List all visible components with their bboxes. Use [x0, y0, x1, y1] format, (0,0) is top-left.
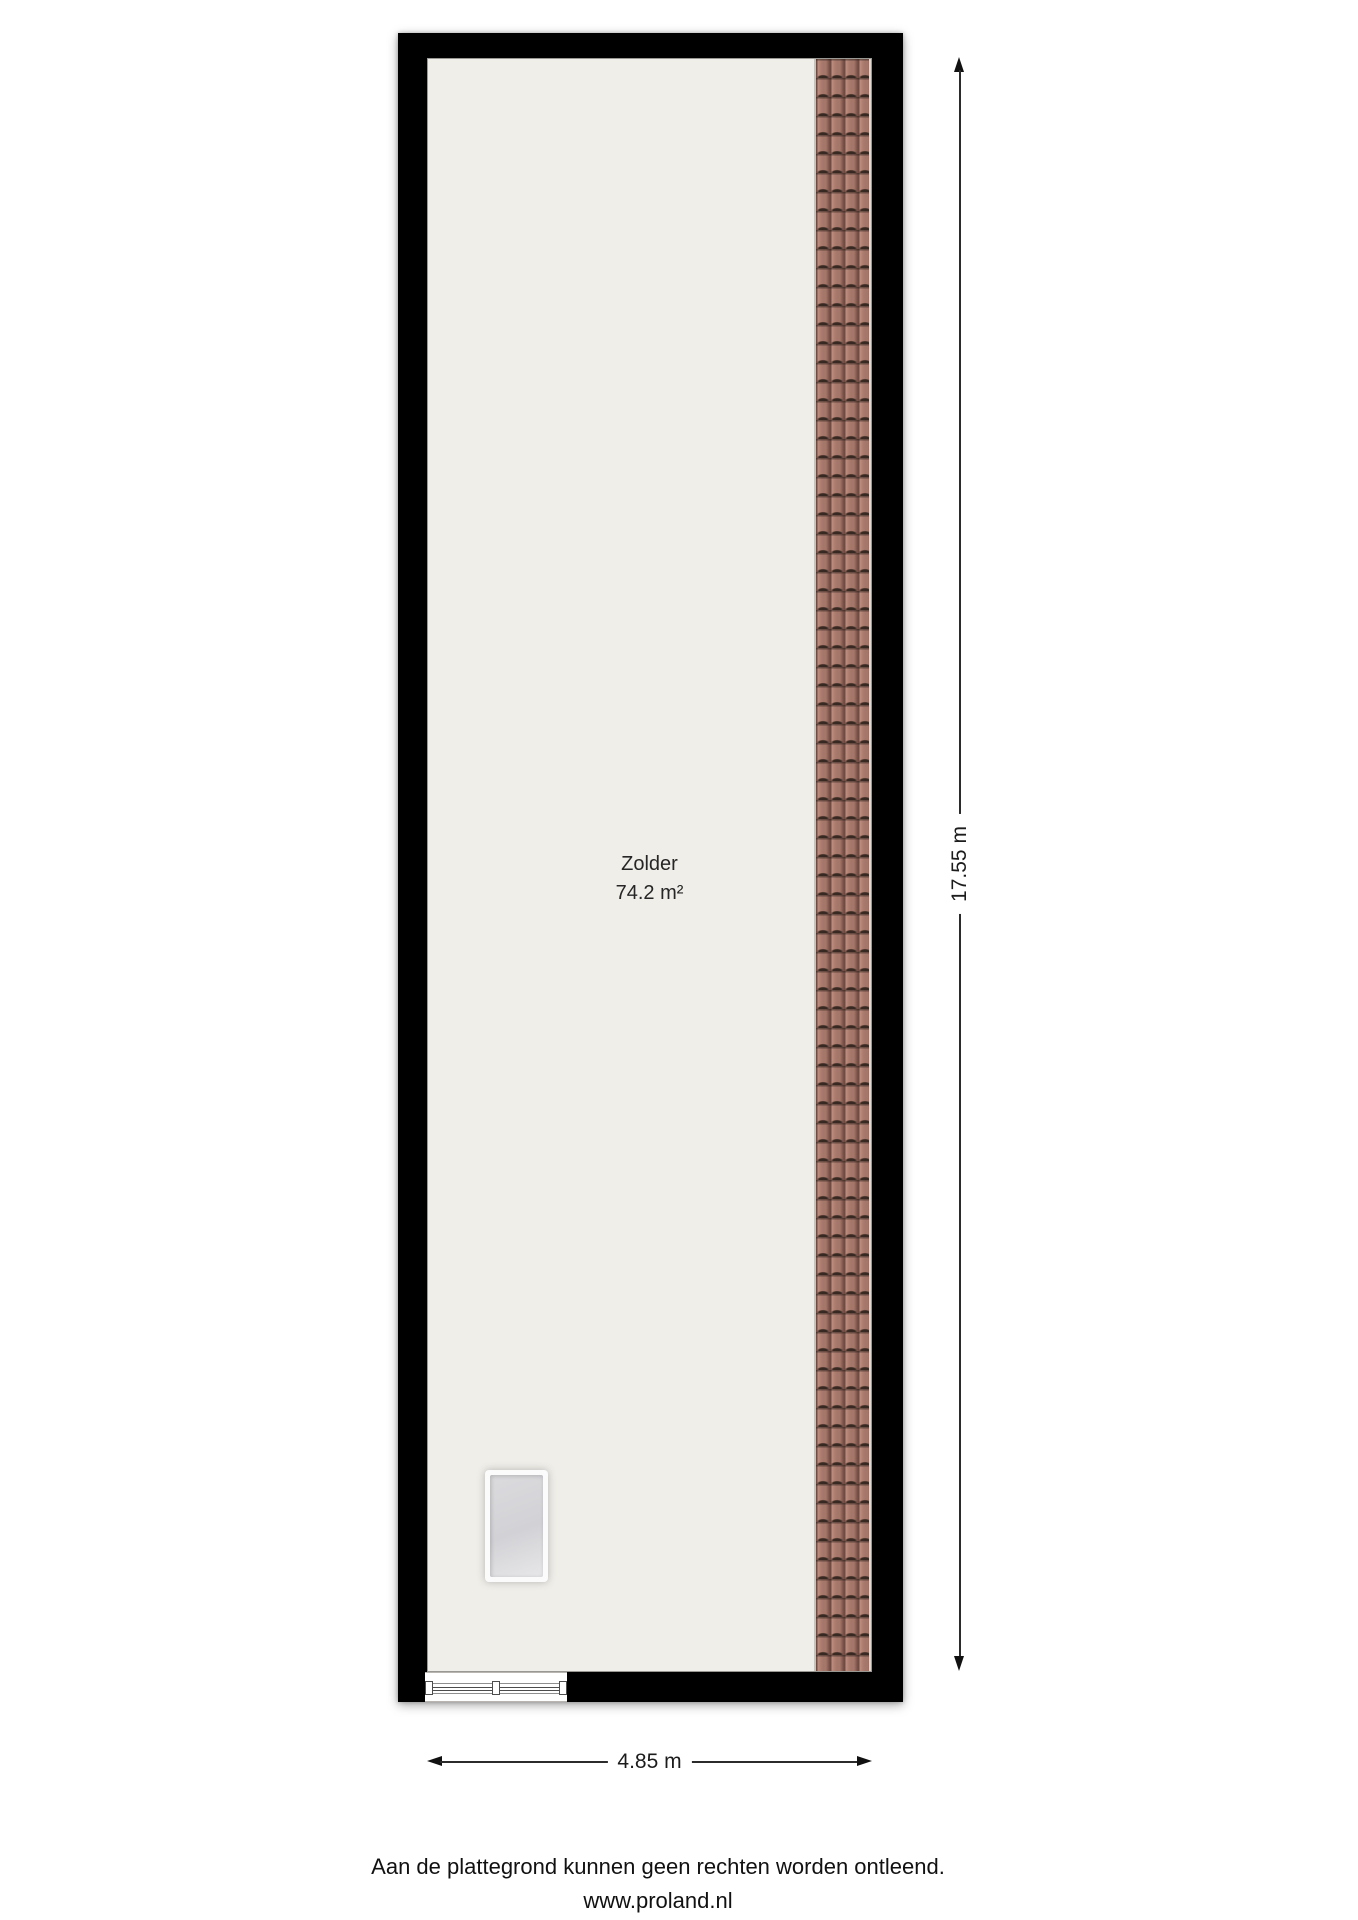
footer-disclaimer: Aan de plattegrond kunnen geen rechten w…	[0, 1850, 1316, 1884]
skylight-glass	[490, 1475, 543, 1577]
footer-website: www.proland.nl	[0, 1884, 1316, 1918]
floorplan-page: Zolder 74.2 m² 17.55 m 4.85 m	[0, 0, 1358, 1920]
bottom-wall-window	[425, 1672, 567, 1702]
dimension-arrow-down-icon	[954, 1656, 964, 1671]
floorplan-canvas: Zolder 74.2 m²	[398, 33, 903, 1702]
window-post-left	[425, 1681, 433, 1695]
room-area: 74.2 m²	[427, 879, 872, 908]
window-post-right	[559, 1681, 567, 1695]
skylight-window	[485, 1470, 548, 1582]
dimension-arrow-right-icon	[857, 1756, 872, 1766]
room-name: Zolder	[427, 850, 872, 879]
footer: Aan de plattegrond kunnen geen rechten w…	[0, 1850, 1316, 1918]
room-label: Zolder 74.2 m²	[427, 850, 872, 908]
vertical-dimension-label: 17.55 m	[948, 814, 972, 914]
window-post-middle	[492, 1681, 500, 1695]
horizontal-dimension-label: 4.85 m	[607, 1750, 691, 1774]
horizontal-dimension: 4.85 m	[427, 1753, 872, 1770]
floor-area: Zolder 74.2 m²	[427, 58, 872, 1672]
vertical-dimension: 17.55 m	[951, 57, 968, 1671]
